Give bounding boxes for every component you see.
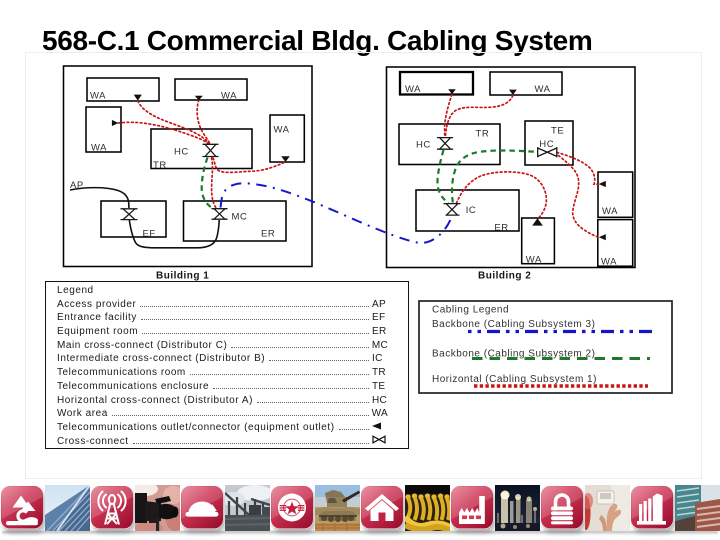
svg-text:Building 2: Building 2: [478, 271, 531, 282]
svg-text:IC: IC: [466, 205, 477, 216]
svg-text:Horizontal (Cabling Subsystem: Horizontal (Cabling Subsystem 1): [432, 374, 597, 385]
svg-text:WA: WA: [601, 257, 617, 268]
svg-text:WA: WA: [274, 125, 290, 136]
svg-text:AP: AP: [70, 180, 84, 191]
svg-text:ER: ER: [494, 223, 508, 234]
svg-text:HC: HC: [174, 147, 189, 158]
svg-text:HC: HC: [416, 140, 431, 151]
svg-text:TR: TR: [153, 160, 167, 171]
svg-text:WA: WA: [405, 84, 421, 95]
svg-text:WA: WA: [91, 143, 107, 154]
svg-text:WA: WA: [221, 91, 237, 102]
svg-text:Backbone (Cabling Subsystem 3): Backbone (Cabling Subsystem 3): [432, 319, 595, 330]
svg-text:TE: TE: [551, 126, 564, 137]
svg-text:Building 1: Building 1: [156, 271, 209, 282]
svg-text:WA: WA: [535, 84, 551, 95]
svg-text:HC: HC: [539, 139, 554, 150]
svg-text:MC: MC: [232, 212, 248, 223]
svg-text:EF: EF: [143, 229, 156, 240]
svg-text:Cabling Legend: Cabling Legend: [432, 305, 509, 316]
svg-text:ER: ER: [261, 229, 275, 240]
svg-text:WA: WA: [602, 206, 618, 217]
svg-text:WA: WA: [526, 255, 542, 266]
svg-text:TR: TR: [476, 129, 490, 140]
svg-text:WA: WA: [90, 91, 106, 102]
